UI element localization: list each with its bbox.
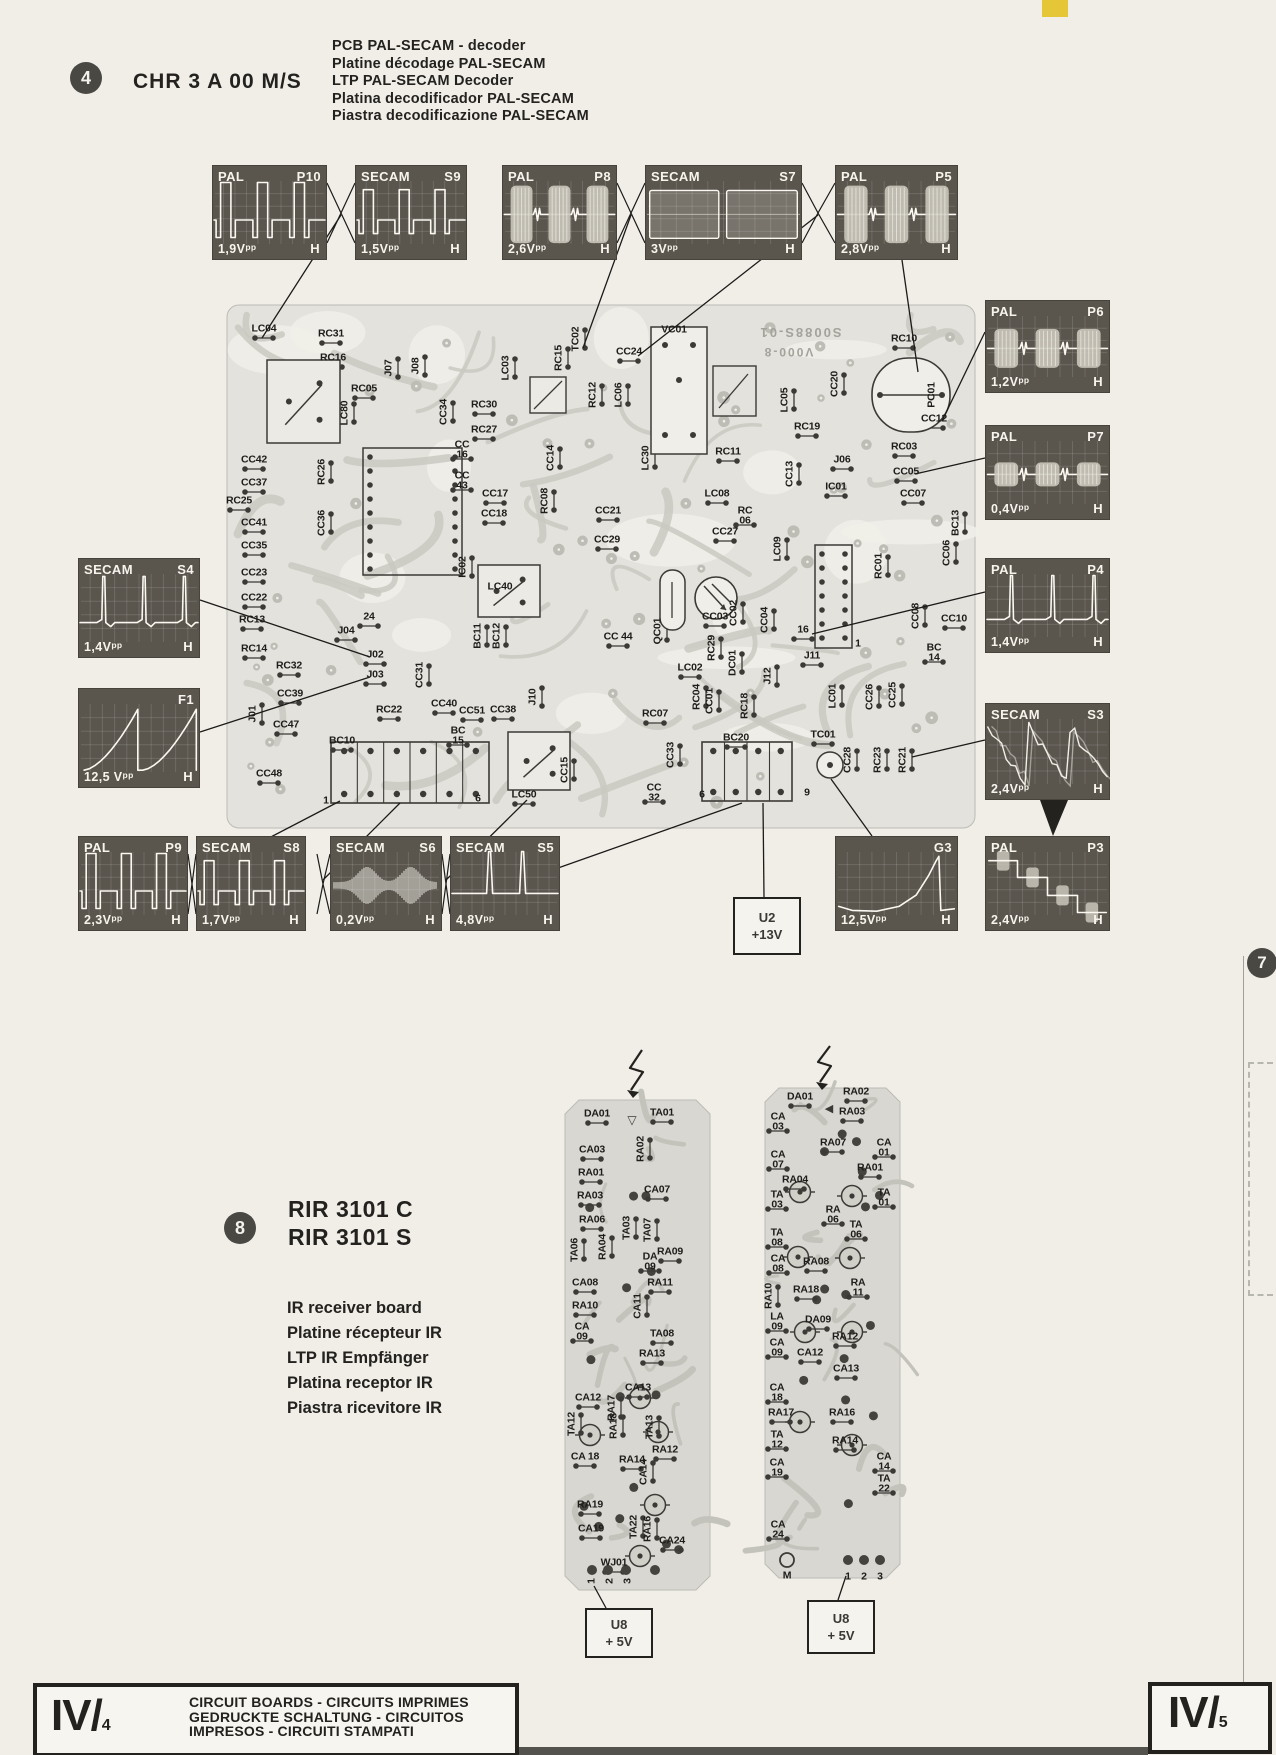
ir-left-component-label: CA19: [578, 1524, 604, 1534]
ir-right-component-label: RA 06: [826, 1206, 841, 1225]
scope-code: S3: [1087, 707, 1104, 722]
scope-system: PAL: [84, 840, 110, 855]
pcb-component-label: CC13: [785, 461, 795, 487]
footer-caption-line: CIRCUIT BOARDS - CIRCUITS IMPRIMES: [189, 1695, 469, 1710]
pcb-component-label: RC32: [276, 661, 302, 671]
scope-vpp-sub: pp: [535, 242, 546, 252]
ir-left-component-label: 1: [587, 1578, 597, 1584]
scope-timebase: H: [600, 241, 610, 256]
footer-caption: CIRCUIT BOARDS - CIRCUITS IMPRIMESGEDRUC…: [189, 1695, 469, 1739]
scope-code: P10: [297, 169, 321, 184]
pcb-component-label: CC42: [241, 455, 267, 465]
pcb-component-label: CC18: [481, 509, 507, 519]
pcb-component-label: RC19: [794, 422, 820, 432]
scope-timebase: H: [1093, 374, 1103, 389]
scope-vpp-sub: pp: [483, 913, 494, 923]
pcb-component-label: CC51: [459, 706, 485, 716]
scope-timebase: H: [310, 241, 320, 256]
pcb-component-label: RC10: [891, 334, 917, 344]
scope-vpp-sub: pp: [363, 913, 374, 923]
pcb-component-label: BC11: [473, 623, 483, 648]
scope-code: G3: [934, 840, 952, 855]
supply-box-U8: U8+ 5V: [807, 1600, 875, 1654]
supply-box-U2: U2+13V: [733, 897, 801, 955]
footer-left-box: IV/4 CIRCUIT BOARDS - CIRCUITS IMPRIMESG…: [33, 1683, 519, 1755]
pcb-component-label: J06: [834, 455, 851, 465]
pcb-component-label: CC 32: [647, 784, 662, 803]
footer-caption-line: GEDRUCKTE SCHALTUNG - CIRCUITOS: [189, 1710, 469, 1725]
pcb-component-label: LC04: [252, 324, 277, 334]
ir-right-component-label: RA02: [843, 1087, 869, 1097]
ir-right-component-label: RA04: [782, 1175, 808, 1185]
scope-system: PAL: [991, 840, 1017, 855]
pcb-component-label: CC17: [482, 489, 508, 499]
pcb-component-label: 16: [797, 625, 808, 635]
page-number-right-sub: 5: [1219, 1714, 1228, 1731]
ir-right-component-label: LA 09: [770, 1313, 784, 1332]
pcb-component-label: LC30: [641, 446, 651, 471]
scope-code: S5: [537, 840, 554, 855]
scope-P9: PALP92,3VppH: [78, 836, 188, 931]
pcb-component-label: PC01: [927, 382, 937, 407]
ir-left-component-label: 2: [605, 1578, 615, 1584]
ir-left-component-label: TA22: [629, 1515, 639, 1539]
ir-left-component-label: RA11: [647, 1278, 672, 1288]
ir-left-component-label: RA01: [578, 1168, 604, 1178]
scope-vpp: 2,4Vpp: [991, 913, 1018, 927]
pcb-component-label: CC34: [439, 399, 449, 425]
pcb-component-label: RC03: [891, 442, 917, 452]
pcb-component-label: RC13: [239, 615, 265, 625]
ir-right-component-label: CA 19: [770, 1459, 785, 1478]
ir-right-component-label: CA 09: [770, 1339, 785, 1358]
pcb-component-label: CC22: [241, 593, 267, 603]
pcb-component-label: CC29: [594, 535, 620, 545]
pcb-component-label: CC06: [942, 540, 952, 566]
scope-timebase: H: [543, 912, 553, 927]
page-number-left: IV/: [51, 1691, 102, 1740]
scope-code: P8: [594, 169, 611, 184]
ir-left-component-label: TA01: [650, 1108, 674, 1118]
scope-system: SECAM: [84, 562, 133, 577]
scope-system: SECAM: [456, 840, 505, 855]
scope-vpp: 0,2Vpp: [336, 913, 363, 927]
pcb-component-label: CC27: [712, 527, 738, 537]
scope-vpp-sub: pp: [111, 640, 122, 650]
scope-timebase: H: [171, 912, 181, 927]
pcb-component-label: RC21: [898, 747, 908, 773]
ir-right-component-label: TA 03: [771, 1191, 784, 1210]
ir-right-component-label: TA 12: [771, 1431, 784, 1450]
scope-timebase: H: [289, 912, 299, 927]
scope-vpp: 2,6Vpp: [508, 242, 535, 256]
scope-system: PAL: [841, 169, 867, 184]
scope-P8: PALP82,6VppH: [502, 165, 617, 260]
pcb-component-label: CC07: [900, 489, 926, 499]
scope-code: P5: [935, 169, 952, 184]
ir-left-component-label: WJ01: [601, 1558, 628, 1568]
pcb-component-label: RC22: [376, 705, 402, 715]
pcb-component-label: RC05: [351, 384, 377, 394]
pcb-component-label: LC08: [705, 489, 730, 499]
pcb-component-label: 9: [804, 788, 810, 798]
supply-box-line: U8: [833, 1610, 850, 1627]
scope-system: SECAM: [336, 840, 385, 855]
ir-left-component-label: TA08: [650, 1329, 674, 1339]
pcb-component-label: LC50: [512, 790, 537, 800]
ir-left-component-label: RA04: [598, 1234, 608, 1260]
ir-right-component-label: TA 22: [878, 1475, 891, 1494]
scope-vpp-sub: pp: [1018, 635, 1029, 645]
ir-left-component-label: CA07: [644, 1185, 670, 1195]
ir-right-component-label: CA 14: [877, 1453, 892, 1472]
scope-vpp: 2,3Vpp: [84, 913, 111, 927]
pcb-component-label: RC16: [320, 353, 346, 363]
pcb-component-label: CC28: [843, 747, 853, 773]
ir-left-component-label: CA08: [572, 1278, 598, 1288]
pcb-component-label: CC31: [415, 662, 425, 688]
scope-vpp: 1,5Vpp: [361, 242, 388, 256]
scope-code: P4: [1087, 562, 1104, 577]
ir-right-component-label: RA01: [857, 1163, 883, 1173]
pcb-component-label: RC08: [540, 488, 550, 514]
scope-S8: SECAMS81,7VppH: [196, 836, 306, 931]
scope-S9: SECAMS91,5VppH: [355, 165, 467, 260]
scope-system: SECAM: [202, 840, 251, 855]
scope-timebase: H: [450, 241, 460, 256]
pcb-component-label: J12: [763, 668, 773, 685]
ir-left-component-label: RA02: [636, 1136, 646, 1162]
supply-box-line: U8: [611, 1616, 628, 1633]
pcb-component-label: RC29: [707, 635, 717, 661]
pcb-component-label: LC09: [773, 537, 783, 562]
pcb-component-label: RC07: [642, 709, 668, 719]
pcb-component-label: CC15: [560, 757, 570, 783]
scope-code: P9: [165, 840, 182, 855]
scope-timebase: H: [785, 241, 795, 256]
ir-right-component-label: DA09: [805, 1315, 831, 1325]
pcb-component-label: CC47: [273, 720, 299, 730]
ir-right-component-label: M: [783, 1571, 792, 1581]
pcb-component-label: 1: [323, 796, 329, 806]
pcb-component-label: J01: [248, 706, 258, 723]
scope-vpp-sub: pp: [123, 770, 134, 780]
ir-left-component-label: CA 18: [571, 1452, 599, 1462]
scope-timebase: H: [425, 912, 435, 927]
scope-system: SECAM: [361, 169, 410, 184]
ir-left-component-label: RA06: [579, 1215, 605, 1225]
ir-left-component-label: RA09: [657, 1247, 683, 1257]
ir-left-component-label: TA13: [645, 1415, 655, 1439]
pcb-component-label: RC25: [226, 496, 252, 506]
pcb-component-label: LC80: [340, 401, 350, 426]
supply-box-line: + 5V: [605, 1633, 632, 1650]
ir-left-component-label: 3: [623, 1578, 633, 1584]
manual-page: 4 CHR 3 A 00 M/S PCB PAL-SECAM - decoder…: [0, 0, 1276, 1755]
ir-diode-icon: ◀: [825, 1103, 834, 1115]
pcb-component-label: CC26: [865, 684, 875, 710]
scope-S4: SECAMS41,4VppH: [78, 558, 200, 658]
pcb-component-label: 6: [475, 794, 481, 804]
scope-P6: PALP61,2VppH: [985, 300, 1110, 393]
scope-vpp: 12,5Vpp: [841, 913, 876, 927]
scope-code: S6: [419, 840, 436, 855]
ir-right-component-label: RA03: [839, 1107, 865, 1117]
scope-vpp: 0,4Vpp: [991, 502, 1018, 516]
ir-left-component-label: DA01: [584, 1109, 610, 1119]
pcb-component-label: J04: [338, 626, 355, 636]
ir-right-component-label: CA 18: [770, 1384, 785, 1403]
pcb-component-label: CC02: [729, 600, 739, 626]
pcb-component-label: J02: [367, 650, 384, 660]
pcb-component-label: CC35: [241, 541, 267, 551]
scope-S5: SECAMS54,8VppH: [450, 836, 560, 931]
scope-vpp-sub: pp: [229, 913, 240, 923]
ir-right-component-label: CA 03: [771, 1113, 786, 1132]
pcb-component-label: J11: [804, 651, 820, 661]
pcb-component-label: J08: [411, 358, 421, 375]
pcb-component-label: CC40: [431, 699, 457, 709]
ir-left-component-label: CA14: [639, 1459, 649, 1485]
scope-vpp: 3Vpp: [651, 242, 667, 256]
ir-right-component-label: 1: [845, 1572, 851, 1582]
ir-left-component-label: DA 09: [643, 1253, 658, 1272]
ir-left-component-label: TA07: [643, 1218, 653, 1242]
ir-right-component-label: 2: [861, 1572, 867, 1582]
pcb-component-label: CC39: [277, 689, 303, 699]
pcb-component-label: CC38: [490, 705, 516, 715]
pcb-component-label: LC05: [780, 388, 790, 413]
scope-timebase: H: [941, 912, 951, 927]
footer-right-box: IV/5: [1148, 1682, 1272, 1754]
pcb-component-label: RC27: [471, 425, 497, 435]
footer-caption-line: IMPRESOS - CIRCUITI STAMPATI: [189, 1724, 469, 1739]
pcb-component-label: IC01: [825, 482, 846, 492]
ir-right-component-label: RA17: [768, 1408, 794, 1418]
scope-S7: SECAMS73VppH: [645, 165, 802, 260]
pcb-component-label: RC01: [874, 553, 884, 579]
ir-right-component-label: RA 11: [851, 1279, 866, 1298]
scope-system: PAL: [991, 562, 1017, 577]
pcb-component-label: J10: [528, 689, 538, 706]
scope-vpp-sub: pp: [1018, 913, 1029, 923]
ir-left-component-label: TA06: [570, 1238, 580, 1262]
scope-P3: PALP32,4VppH: [985, 836, 1110, 931]
scope-code: S8: [283, 840, 300, 855]
ir-right-component-label: RA07: [820, 1138, 846, 1148]
scope-timebase: H: [1093, 781, 1103, 796]
ir-right-component-label: TA 01: [878, 1189, 891, 1208]
ir-diode-icon: ▽: [627, 1113, 637, 1127]
pcb-component-label: RC31: [318, 329, 344, 339]
pcb-component-label: J03: [367, 670, 384, 680]
pcb-component-label: BC10: [329, 736, 355, 746]
pcb-component-label: LC03: [501, 356, 511, 381]
pcb-component-label: RC30: [471, 400, 497, 410]
pcb-component-label: CC24: [616, 347, 642, 357]
pcb-component-label: CC25: [888, 682, 898, 708]
ir-left-component-label: RA12: [652, 1445, 678, 1455]
pcb-component-label: CC41: [241, 518, 267, 528]
scope-vpp-sub: pp: [1018, 782, 1029, 792]
scope-code: P7: [1087, 429, 1104, 444]
ir-left-component-label: TA12: [567, 1412, 577, 1436]
pcb-component-label: TC02: [571, 327, 581, 352]
scope-code: S4: [177, 562, 194, 577]
scope-G3: G312,5VppH: [835, 836, 958, 931]
scope-system: SECAM: [991, 707, 1040, 722]
ir-right-component-label: RA14: [832, 1436, 858, 1446]
scope-vpp-sub: pp: [1018, 502, 1029, 512]
pcb-component-label: CC21: [595, 506, 621, 516]
pcb-component-label: RC23: [873, 747, 883, 773]
scope-vpp: 1,7Vpp: [202, 913, 229, 927]
scope-code: S7: [779, 169, 796, 184]
scope-P4: PALP41,4VppH: [985, 558, 1110, 653]
ir-left-component-label: RA13: [639, 1349, 665, 1359]
scope-vpp: 2,8Vpp: [841, 242, 868, 256]
scope-timebase: H: [1093, 501, 1103, 516]
pcb-component-label: CC10: [941, 614, 967, 624]
ir-right-component-label: RA10: [764, 1283, 774, 1309]
pcb-component-label: BC13: [951, 510, 961, 536]
ir-left-component-label: CA24: [659, 1536, 685, 1546]
pcb-component-label: CC37: [241, 478, 267, 488]
pcb-component-label: RC04: [692, 684, 702, 710]
pcb-component-label: LC01: [828, 684, 838, 709]
scope-vpp: 12,5 Vpp: [84, 770, 123, 784]
pcb-component-label: CC03: [702, 612, 728, 622]
scope-P10: PALP101,9VppH: [212, 165, 327, 260]
scope-system: SECAM: [651, 169, 700, 184]
supply-box-line: +13V: [752, 926, 783, 943]
scope-timebase: H: [1093, 912, 1103, 927]
scope-vpp-sub: pp: [868, 242, 879, 252]
scope-vpp-sub: pp: [388, 242, 399, 252]
pcb-component-label: CC48: [256, 769, 282, 779]
ir-left-component-label: RA03: [577, 1191, 603, 1201]
scope-timebase: H: [183, 769, 193, 784]
scope-vpp: 1,4Vpp: [84, 640, 111, 654]
pcb-component-label: DC01: [728, 650, 738, 676]
scope-vpp: 1,2Vpp: [991, 375, 1018, 389]
ir-right-component-label: RA12: [832, 1332, 858, 1342]
silkscreen-print: S0088S-01: [758, 325, 841, 340]
scope-S6: SECAMS60,2VppH: [330, 836, 442, 931]
ir-right-component-label: CA 08: [771, 1255, 786, 1274]
ir-right-component-label: CA12: [797, 1348, 823, 1358]
scope-code: P3: [1087, 840, 1104, 855]
scope-F1: F112,5 VppH: [78, 688, 200, 788]
ir-left-component-label: CA12: [575, 1393, 601, 1403]
ir-right-component-label: RA18: [793, 1285, 819, 1295]
pcb-component-label: LC40: [488, 582, 513, 592]
pcb-component-label: RC18: [740, 693, 750, 719]
scope-vpp-sub: pp: [245, 242, 256, 252]
pcb-component-label: 1: [855, 639, 861, 649]
ir-left-component-label: CA13: [625, 1383, 651, 1393]
pcb-component-label: CC 43: [455, 472, 470, 491]
silkscreen-print-2: V000-8: [763, 345, 814, 359]
ir-right-component-label: CA 24: [771, 1521, 786, 1540]
ir-right-component-label: 3: [877, 1572, 883, 1582]
ir-right-component-label: DA01: [787, 1092, 813, 1102]
pcb-component-label: CC01: [705, 688, 715, 714]
ir-left-component-label: CA11: [633, 1293, 643, 1318]
supply-box-U8: U8+ 5V: [585, 1608, 653, 1658]
pcb-component-label: RC14: [241, 644, 267, 654]
scope-timebase: H: [941, 241, 951, 256]
ir-right-component-label: TA 08: [771, 1229, 784, 1248]
page-number-left-sub: 4: [102, 1717, 111, 1734]
scope-system: PAL: [508, 169, 534, 184]
scope-vpp-sub: pp: [876, 913, 887, 923]
scope-timebase: H: [1093, 634, 1103, 649]
scope-vpp-sub: pp: [667, 242, 678, 252]
ir-left-component-label: CA 09: [575, 1323, 590, 1342]
page-number-right: IV/: [1168, 1688, 1219, 1737]
ir-left-component-label: RA16: [643, 1516, 653, 1542]
ir-left-component-label: RA19: [577, 1500, 603, 1510]
pcb-component-label: CC08: [911, 603, 921, 629]
pcb-component-label: LC02: [678, 663, 703, 673]
index-tab: [1042, 0, 1068, 17]
scope-system: PAL: [218, 169, 244, 184]
scope-P7: PALP70,4VppH: [985, 425, 1110, 520]
pcb-component-label: RC12: [588, 382, 598, 408]
scope-vpp: 4,8Vpp: [456, 913, 483, 927]
ir-right-component-label: RA16: [829, 1408, 855, 1418]
pcb-component-label: IC02: [458, 556, 468, 577]
ir-right-component-label: CA 07: [771, 1151, 786, 1170]
pcb-component-label: CC04: [760, 607, 770, 633]
pcb-component-label: BC 15: [451, 727, 466, 746]
pcb-component-label: CC33: [666, 742, 676, 768]
ir-left-component-label: RA10: [572, 1301, 598, 1311]
ir-right-component-label: TA 06: [850, 1221, 863, 1240]
ir-left-component-label: CA03: [579, 1145, 605, 1155]
pcb-component-label: J07: [384, 360, 394, 377]
scope-vpp-sub: pp: [111, 913, 122, 923]
pcb-component-label: TC01: [811, 730, 836, 740]
pcb-component-label: LC06: [614, 383, 624, 408]
pcb-component-label: CC05: [893, 467, 919, 477]
ir-right-component-label: CA13: [833, 1364, 859, 1374]
ir-left-component-label: RA18: [609, 1413, 619, 1439]
pcb-component-label: BC 14: [927, 644, 942, 663]
scope-code: F1: [178, 692, 194, 707]
pcb-component-label: CC36: [317, 510, 327, 536]
supply-box-line: U2: [759, 909, 776, 926]
pcb-component-label: 6: [699, 790, 705, 800]
scope-system: PAL: [991, 429, 1017, 444]
pcb-component-label: VC01: [661, 325, 686, 335]
pcb-component-label: RC11: [715, 447, 740, 457]
scope-vpp: 1,9Vpp: [218, 242, 245, 256]
scope-vpp: 2,4Vpp: [991, 782, 1018, 796]
pcb-component-label: RC26: [317, 459, 327, 485]
scope-timebase: H: [183, 639, 193, 654]
scope-vpp: 1,4Vpp: [991, 635, 1018, 649]
scope-system: PAL: [991, 304, 1017, 319]
pcb-component-label: BC12: [492, 623, 502, 649]
pcb-component-label: CC23: [241, 568, 267, 578]
supply-box-line: + 5V: [827, 1627, 854, 1644]
ir-right-component-label: CA 01: [877, 1139, 892, 1158]
scope-S3: SECAMS32,4VppH: [985, 703, 1110, 800]
pcb-component-label: RC 06: [738, 507, 753, 526]
scope-code: P6: [1087, 304, 1104, 319]
